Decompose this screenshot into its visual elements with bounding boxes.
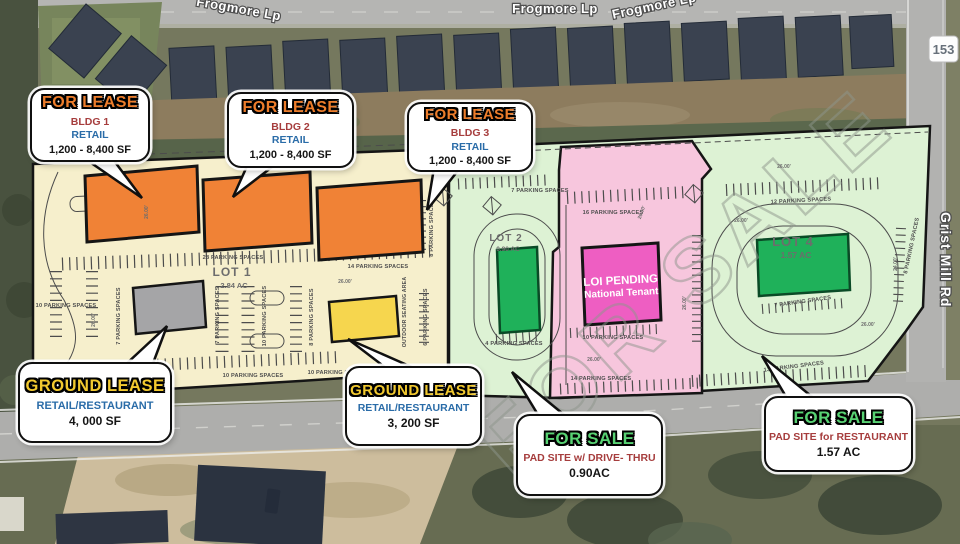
callout-title: FOR SALE xyxy=(545,428,635,450)
dimension-label: 26.00' xyxy=(144,205,150,219)
callout-title: GROUND LEASE xyxy=(26,376,165,397)
lot1-area: 2.84 AC xyxy=(220,281,248,290)
parking-label: 14 PARKING SPACES xyxy=(348,264,409,270)
callout-for-lease-bldg1: FOR LEASE BLDG 1 RETAIL 1,200 - 8,400 SF xyxy=(30,88,150,162)
parking-label: 10 PARKING SPACES xyxy=(36,303,97,309)
svg-text:153: 153 xyxy=(933,42,955,57)
parking-label: 7 PARKING SPACES xyxy=(215,286,221,343)
parking-label: 14 PARKING SPACES xyxy=(571,376,632,382)
street-label-frogmore-center: Frogmore Lp xyxy=(512,1,598,16)
dimension-label: 26.00' xyxy=(587,357,601,363)
callout-line: RETAIL xyxy=(451,141,488,155)
dimension-label: 26.00' xyxy=(734,218,748,224)
callout-line: RETAIL/RESTAURANT xyxy=(358,402,470,416)
dimension-label: 26.00' xyxy=(338,279,352,285)
callout-ground-lease-4000: GROUND LEASE RETAIL/RESTAURANT 4, 000 SF xyxy=(18,362,172,443)
parking-label: 7 PARKING SPACES xyxy=(116,287,122,344)
callout-line: RETAIL xyxy=(272,134,309,148)
callout-title: FOR LEASE xyxy=(42,93,138,114)
callout-line: BLDG 2 xyxy=(271,121,310,135)
parking-label: 10 PARKING SPACES xyxy=(262,286,268,347)
dimension-label: 26.00' xyxy=(91,313,97,327)
callout-line: 3, 200 SF xyxy=(387,416,439,432)
building-roof xyxy=(55,510,168,544)
callout-for-sale-restaurant: FOR SALE PAD SITE for RESTAURANT 1.57 AC xyxy=(764,396,913,472)
ground-lease-pad-yellow xyxy=(329,296,399,342)
bldg-3-for-lease xyxy=(317,180,423,260)
lot4-name: LOT 4 xyxy=(772,234,814,249)
route-153-badge: 153 xyxy=(929,36,958,62)
callout-line: 1,200 - 8,400 SF xyxy=(429,154,511,168)
callout-line: 0.90AC xyxy=(569,466,610,482)
callout-line: BLDG 3 xyxy=(451,127,490,141)
lot1-name: LOT 1 xyxy=(212,265,251,279)
lot2-area: 0.90 AC xyxy=(496,246,520,253)
barn-roof xyxy=(194,465,326,544)
dimension-label: 26.00' xyxy=(777,164,791,170)
callout-line: 4, 000 SF xyxy=(69,414,121,430)
parking-label: 10 PARKING SPACES xyxy=(583,335,644,341)
callout-line: RETAIL/RESTAURANT xyxy=(37,399,154,413)
callout-title: FOR LEASE xyxy=(242,98,338,119)
callout-for-lease-bldg3: FOR LEASE BLDG 3 RETAIL 1,200 - 8,400 SF xyxy=(407,102,533,172)
callout-line: 1,200 - 8,400 SF xyxy=(49,143,131,157)
parking-label: 8 PARKING SPACES xyxy=(309,288,315,345)
callout-line: 1,200 - 8,400 SF xyxy=(250,148,332,162)
parking-label: 6 PARKING SPACES xyxy=(423,288,429,345)
callout-title: FOR SALE xyxy=(794,407,884,429)
callout-title: FOR LEASE xyxy=(425,105,515,125)
lot2-building xyxy=(497,247,540,333)
lot2-name: LOT 2 xyxy=(489,233,522,244)
callout-line: PAD SITE w/ DRIVE- THRU xyxy=(523,452,655,466)
dimension-label: 26.00' xyxy=(861,322,875,328)
ground-lease-pad-gray xyxy=(133,281,206,334)
lot4-area: 1.57 AC xyxy=(781,250,812,260)
parking-label: 16 PARKING SPACES xyxy=(583,210,644,216)
callout-for-sale-drive-thru: FOR SALE PAD SITE w/ DRIVE- THRU 0.90AC xyxy=(516,414,663,496)
parking-label: 10 PARKING SPACES xyxy=(223,373,284,379)
callout-line: 1.57 AC xyxy=(817,445,861,461)
parking-label: 28 PARKING SPACES xyxy=(203,255,264,261)
callout-title: GROUND LEASE xyxy=(350,381,477,401)
parking-label: 4 PARKING SPACES xyxy=(485,341,542,347)
parking-label: 7 PARKING SPACES xyxy=(511,188,568,194)
callout-line: BLDG 1 xyxy=(71,116,110,130)
site-plan-flyer: FOR SALE LOT 1 2.84 AC LOT 2 0.90 AC LOT… xyxy=(0,0,960,544)
callout-line: RETAIL xyxy=(71,129,108,143)
dimension-label: 24.00' xyxy=(893,257,899,271)
outdoor-seating-label: OUTDOOR SEATING AREA xyxy=(402,277,408,348)
bldg-2-for-lease xyxy=(203,172,312,251)
callout-line: PAD SITE for RESTAURANT xyxy=(769,431,908,445)
dimension-label: 26.00' xyxy=(682,296,688,310)
callout-for-lease-bldg2: FOR LEASE BLDG 2 RETAIL 1,200 - 8,400 SF xyxy=(227,92,354,168)
callout-ground-lease-3200: GROUND LEASE RETAIL/RESTAURANT 3, 200 SF xyxy=(345,366,482,446)
street-label-grist-mill: Grist Mill Rd xyxy=(938,212,954,307)
bldg-1-for-lease xyxy=(85,166,199,242)
